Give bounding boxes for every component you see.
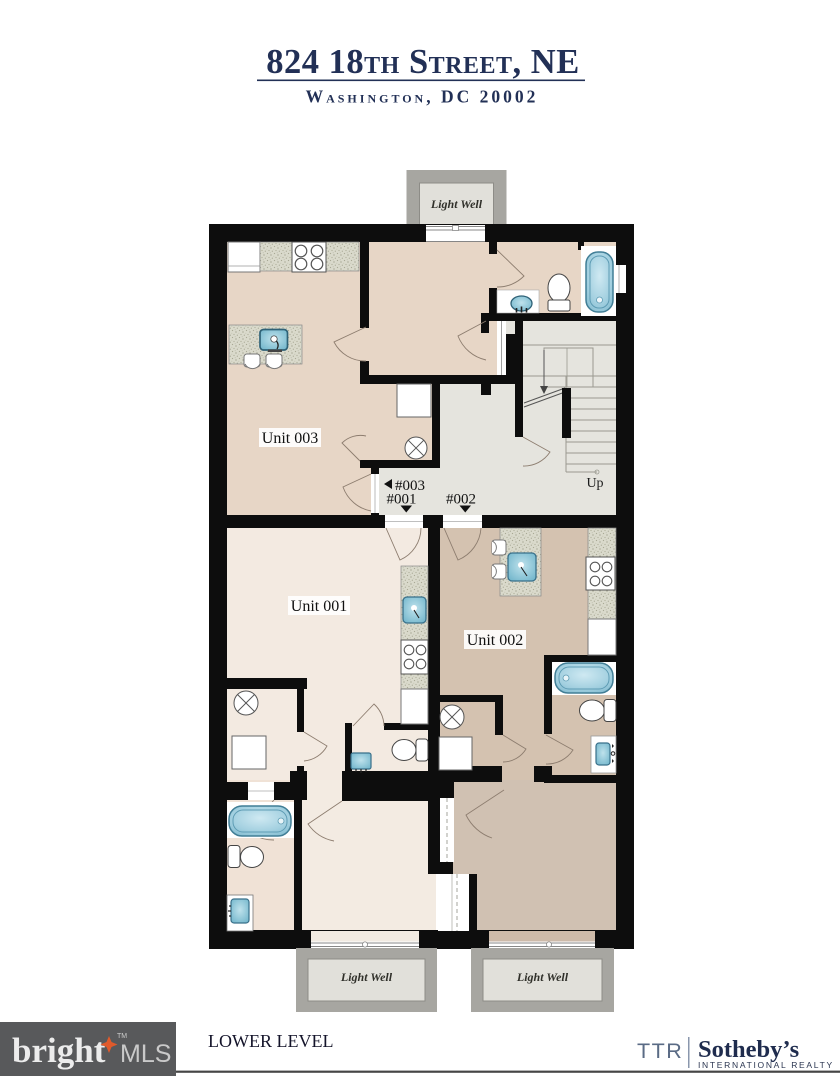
svg-text:Washington, DC 20002: Washington, DC 20002 (306, 87, 539, 107)
svg-text:Unit 002: Unit 002 (467, 632, 523, 649)
svg-text:824 18th Street, NE: 824 18th Street, NE (266, 43, 579, 81)
svg-text:Light Well: Light Well (340, 970, 393, 984)
svg-text:Unit 001: Unit 001 (291, 598, 347, 615)
svg-text:Unit 003: Unit 003 (262, 430, 318, 447)
svg-text:TTR: TTR (637, 1039, 683, 1063)
svg-text:INTERNATIONAL REALTY: INTERNATIONAL REALTY (698, 1060, 834, 1070)
svg-text:bright: bright (12, 1031, 106, 1070)
svg-text:MLS: MLS (120, 1040, 171, 1068)
svg-text:#001: #001 (387, 492, 417, 508)
svg-text:#002: #002 (446, 492, 476, 508)
svg-text:Light Well: Light Well (516, 970, 569, 984)
svg-text:Up: Up (586, 476, 603, 491)
svg-text:TM: TM (117, 1033, 127, 1040)
svg-text:Sotheby’s: Sotheby’s (698, 1036, 799, 1063)
svg-text:Light Well: Light Well (430, 197, 483, 211)
svg-text:LOWER LEVEL: LOWER LEVEL (208, 1031, 333, 1051)
